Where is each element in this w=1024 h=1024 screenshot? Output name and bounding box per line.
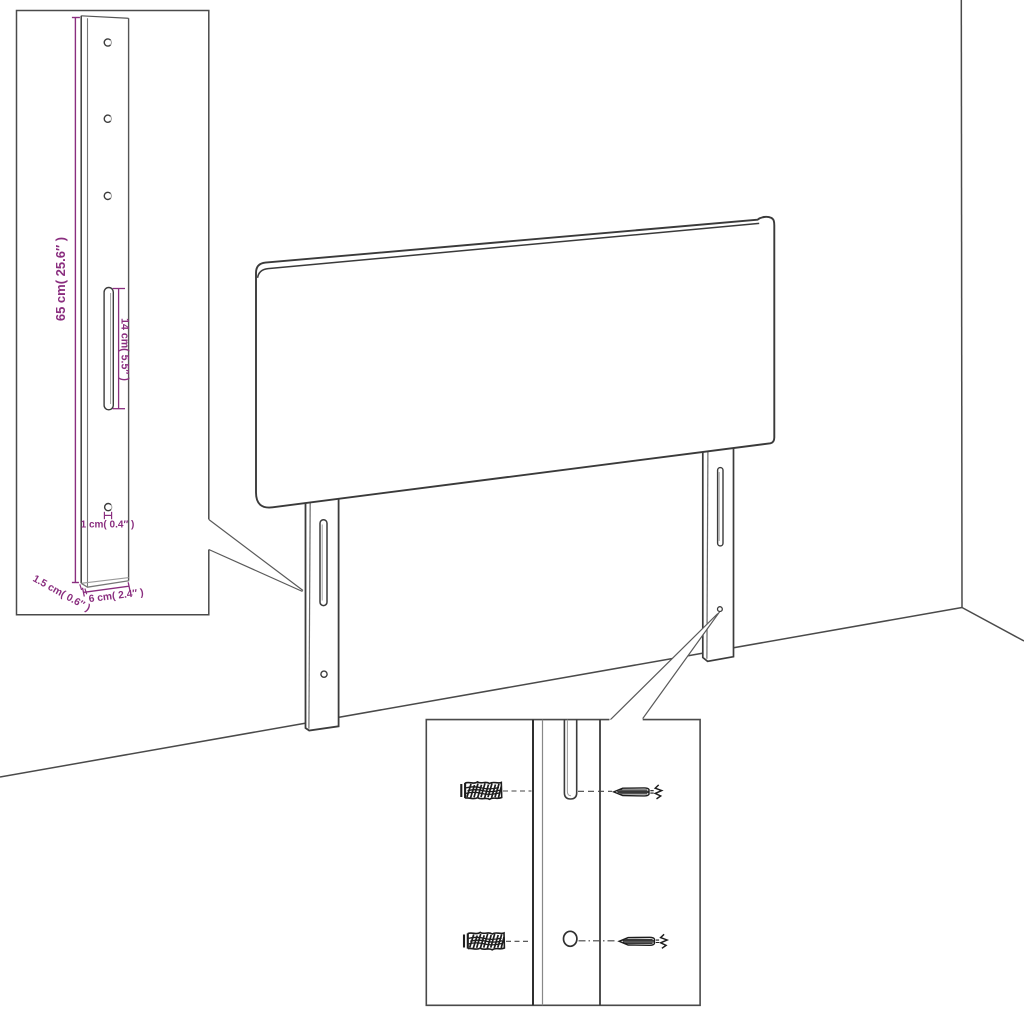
svg-text:14 cm( 5.5″ ): 14 cm( 5.5″ ) bbox=[119, 318, 131, 381]
svg-text:1 cm( 0.4″ ): 1 cm( 0.4″ ) bbox=[81, 520, 135, 531]
svg-text:65 cm( 25.6″ ): 65 cm( 25.6″ ) bbox=[53, 237, 68, 321]
